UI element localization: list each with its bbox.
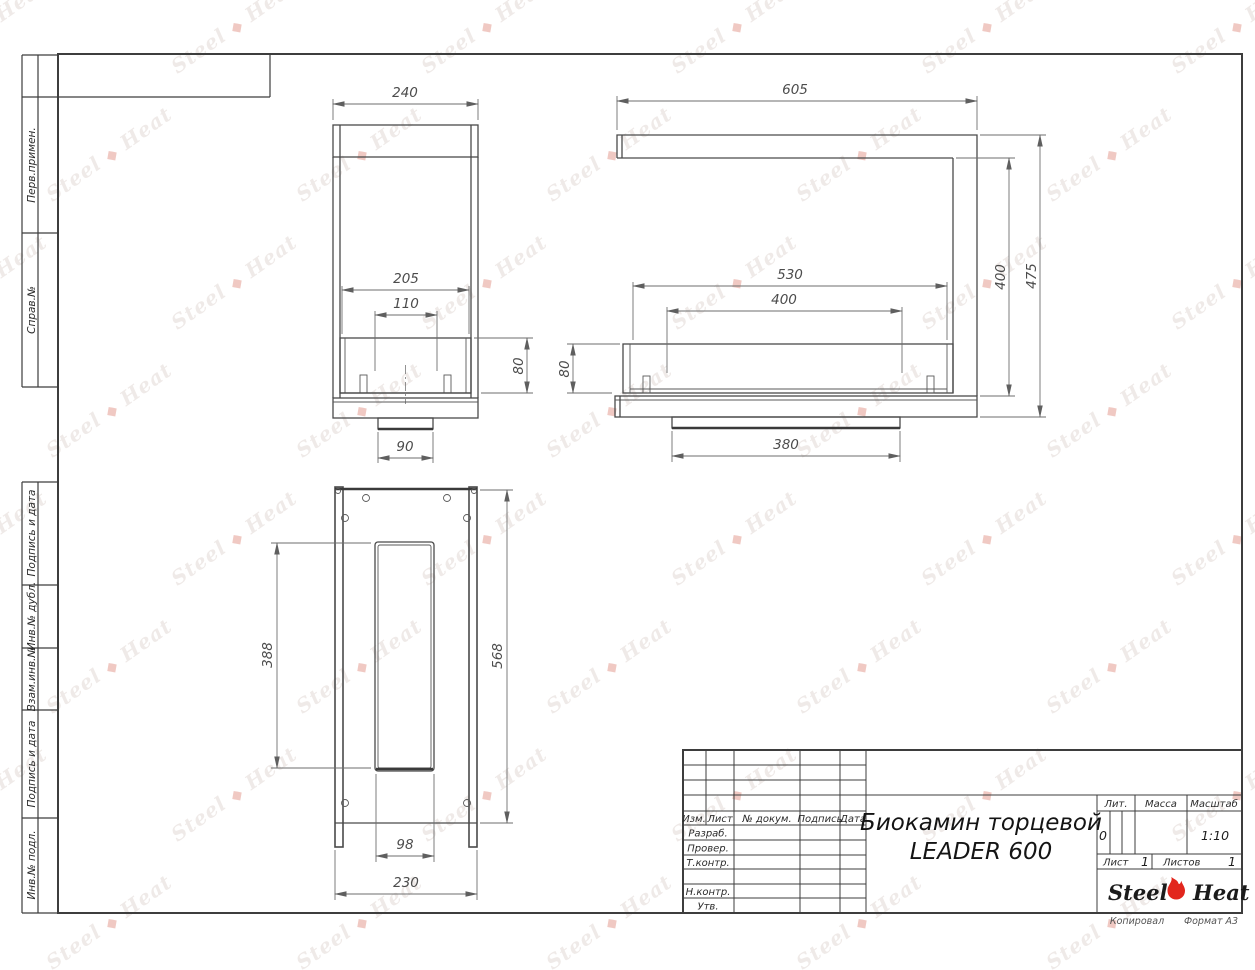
svg-text:205: 205 <box>393 271 419 287</box>
dim-front-burner-width: 400 <box>667 292 902 373</box>
dim-plan-length: 568 <box>480 490 513 823</box>
sheet-frame: Перв.примен. Справ.№ Подпись и дата Инв.… <box>22 54 1242 913</box>
svg-text:388: 388 <box>260 642 276 668</box>
row-razrab: Разраб. <box>688 828 727 840</box>
row-utv: Утв. <box>698 902 719 913</box>
scale-value: 1:10 <box>1201 828 1229 843</box>
margin-label-sprav-no: Справ.№ <box>26 286 38 334</box>
svg-text:605: 605 <box>782 82 808 98</box>
technical-drawing: Перв.примен. Справ.№ Подпись и дата Инв.… <box>0 0 1255 970</box>
dim-side-burner-width: 110 <box>375 296 437 371</box>
svg-text:90: 90 <box>396 439 413 455</box>
svg-text:230: 230 <box>393 875 419 891</box>
scale-label: Масштаб <box>1190 798 1238 810</box>
svg-text:80: 80 <box>511 357 527 374</box>
dim-front-glass-height: 80 <box>557 344 620 393</box>
col-podpis: Подпись <box>798 814 843 825</box>
margin-label-vzam-inv: Взам.инв.№ <box>26 647 38 712</box>
col-izm: Изм. <box>682 814 706 825</box>
steelheat-logo: Steel Heat <box>1108 877 1250 905</box>
lit-label: Лит. <box>1103 799 1127 810</box>
format-label: Формат А3 <box>1184 916 1238 927</box>
row-tkontr: Т.контр. <box>686 858 729 869</box>
svg-text:400: 400 <box>771 292 797 308</box>
sheets-value: 1 <box>1228 854 1236 869</box>
dim-front-foot-width: 380 <box>672 431 900 462</box>
svg-text:240: 240 <box>392 85 418 101</box>
margin-label-podpis-data-1: Подпись и дата <box>26 490 38 577</box>
sheet-label: Лист <box>1102 858 1130 869</box>
sheets-label: Листов <box>1162 858 1200 869</box>
dim-side-foot-width: 90 <box>378 432 433 463</box>
svg-text:475: 475 <box>1024 263 1040 289</box>
dim-front-width: 605 <box>617 82 977 130</box>
drawing-title-line2: LEADER 600 <box>910 839 1053 865</box>
front-view: 605 530 400 80 <box>557 82 1046 462</box>
col-ndokum: № докум. <box>741 814 791 825</box>
svg-text:98: 98 <box>396 837 413 853</box>
drawing-title-line1: Биокамин торцевой <box>860 810 1102 836</box>
dim-side-width: 240 <box>333 85 478 120</box>
plan-view: 388 568 98 230 <box>260 487 513 900</box>
drawing-sheet: Steel ◆ HeatSteel ◆ HeatSteel ◆ HeatStee… <box>0 0 1255 970</box>
svg-text:80: 80 <box>557 360 573 377</box>
col-list: Лист <box>706 814 734 825</box>
sheet-value: 1 <box>1141 854 1149 869</box>
copied-label: Копировал <box>1110 916 1164 927</box>
dim-plan-slot-width: 98 <box>376 774 434 862</box>
dim-plan-width: 230 <box>335 850 477 900</box>
flame-icon <box>1168 877 1186 900</box>
row-prover: Провер. <box>687 844 729 855</box>
title-block: Изм. Лист № докум. Подпись Дата Разраб. … <box>682 750 1250 927</box>
dim-front-height: 475 <box>980 135 1046 417</box>
dim-side-glass-height: 80 <box>474 338 533 393</box>
top-left-reference-box <box>58 54 270 97</box>
dim-front-inner-height: 400 <box>956 158 1015 396</box>
margin-label-inv-dubl: Инв.№ дубл. <box>26 582 38 651</box>
side-view: 240 205 110 80 <box>333 85 533 463</box>
margin-label-podpis-data-2: Подпись и дата <box>26 721 38 808</box>
svg-text:380: 380 <box>773 437 799 453</box>
logo-steel-text: Steel <box>1108 880 1168 905</box>
svg-text:110: 110 <box>393 296 419 312</box>
mass-label: Масса <box>1145 799 1177 810</box>
svg-text:530: 530 <box>777 267 803 283</box>
margin-label-inv-podl: Инв.№ подл. <box>26 830 38 899</box>
row-nkontr: Н.контр. <box>686 887 731 898</box>
dim-plan-slot-length: 388 <box>260 543 371 768</box>
margin-rubric: Перв.примен. Справ.№ Подпись и дата Инв.… <box>22 55 58 913</box>
svg-text:400: 400 <box>993 264 1009 290</box>
margin-label-perv-primen: Перв.примен. <box>26 127 38 202</box>
logo-heat-text: Heat <box>1192 880 1250 905</box>
svg-text:568: 568 <box>490 643 506 669</box>
